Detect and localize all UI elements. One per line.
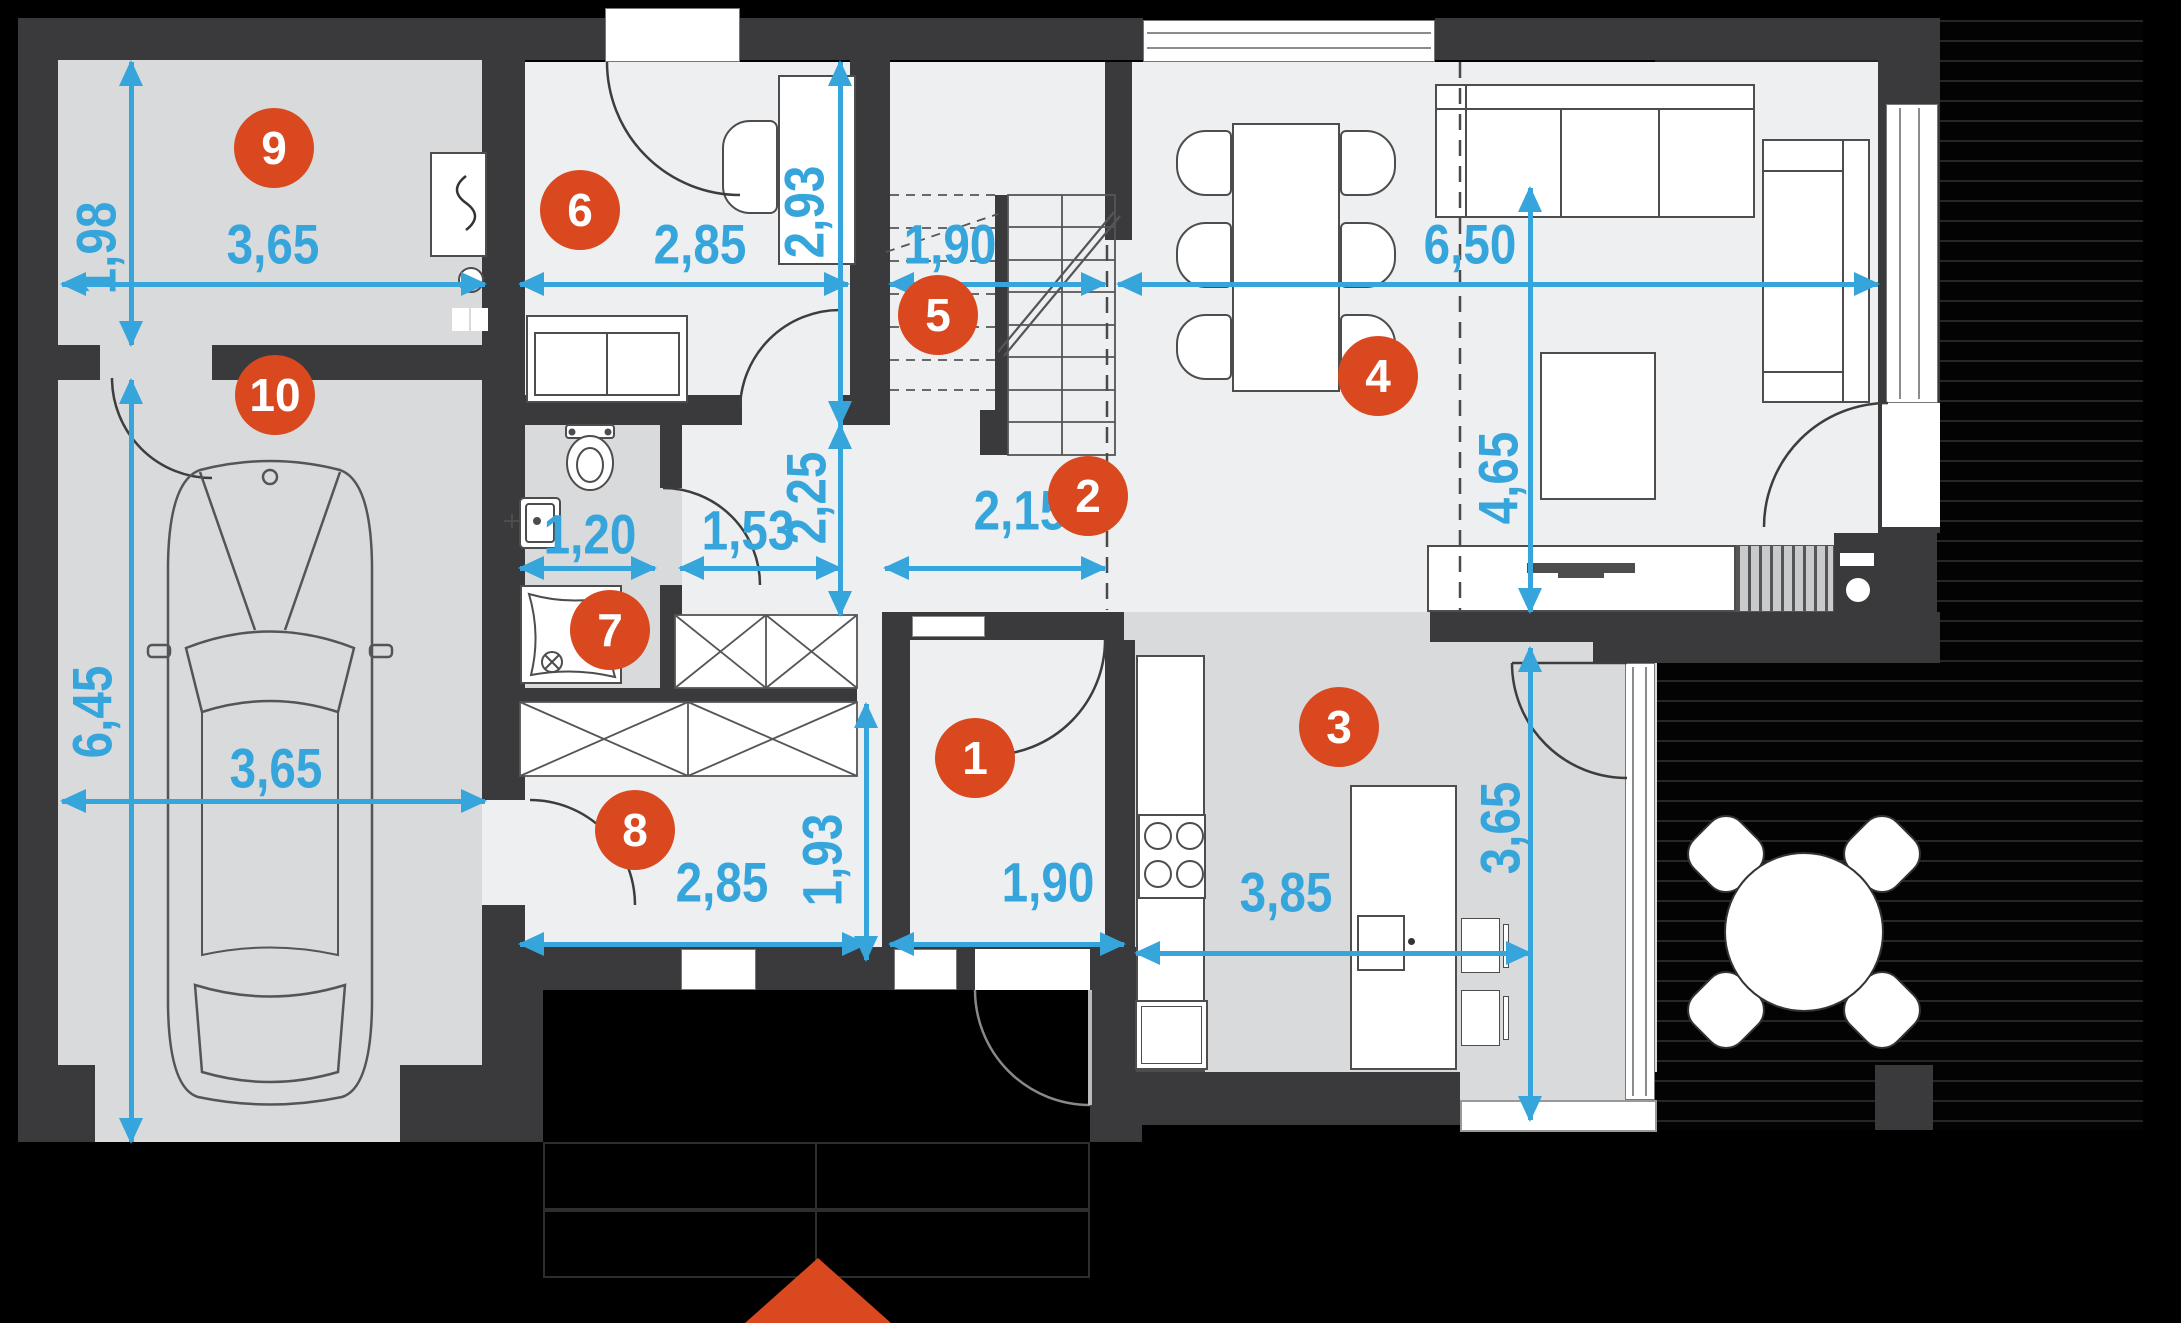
dim-arrowhead (119, 321, 143, 347)
dim-line-kitchen-height (1528, 648, 1533, 1120)
dim-line-room1-width (890, 942, 1124, 947)
heater-coil-icon (457, 176, 475, 230)
floor-plan: 3,65 2,85 1,90 6,50 1,98 6,45 3,65 2,93 … (0, 0, 2181, 1323)
dim-line-hall-width (680, 566, 840, 571)
dim-arrowhead (828, 60, 852, 86)
dim-line-living-height (1528, 188, 1533, 612)
dim-arrowhead (1100, 932, 1126, 956)
dim-label-living-width: 6,50 (1424, 212, 1517, 277)
dim-line-hall-height (838, 425, 843, 615)
room-badge-7: 7 (570, 590, 650, 670)
room-badge-3: 3 (1299, 687, 1379, 767)
entrance-door (975, 990, 1090, 1105)
dim-arrowhead (888, 932, 914, 956)
dim-arrowhead (1518, 646, 1542, 672)
dim-label-room6-width: 2,85 (654, 212, 747, 277)
dim-label-kitchen-width: 3,85 (1240, 860, 1333, 925)
room-badge-10: 10 (235, 355, 315, 435)
dim-arrowhead (1518, 1096, 1542, 1122)
dim-arrowhead (119, 378, 143, 404)
dim-arrowhead (883, 556, 909, 580)
dim-arrowhead (60, 789, 86, 813)
dim-arrowhead (828, 423, 852, 449)
dim-line-room8-width (520, 942, 866, 947)
dim-arrowhead (518, 932, 544, 956)
dim-arrowhead (1854, 272, 1880, 296)
room-badge-8: 8 (595, 790, 675, 870)
dim-label-garage-width: 3,65 (230, 736, 323, 801)
dim-arrowhead (518, 556, 544, 580)
dim-arrowhead (1134, 941, 1160, 965)
dim-arrowhead (678, 556, 704, 580)
dim-line-room8-height (864, 704, 869, 960)
dim-label-stairs-width: 1,90 (904, 212, 997, 277)
dim-arrowhead (854, 936, 878, 962)
dim-label-room8-width: 2,85 (676, 850, 769, 915)
dim-arrowhead (828, 591, 852, 617)
room-badge-9: 9 (234, 108, 314, 188)
dim-label-living-height: 4,65 (1466, 432, 1531, 525)
plan-linework (0, 0, 2181, 1323)
dim-arrowhead (518, 272, 544, 296)
room-badge-2: 2 (1048, 456, 1128, 536)
dim-label-garage-height: 6,45 (60, 666, 125, 759)
dim-arrowhead (119, 60, 143, 86)
dim-label-room9-width: 3,65 (227, 212, 320, 277)
dim-arrowhead (1116, 272, 1142, 296)
dim-label-room1-width: 1,90 (1002, 850, 1095, 915)
dim-arrowhead (1081, 556, 1107, 580)
dim-arrowhead (824, 272, 850, 296)
room-badge-6: 6 (540, 170, 620, 250)
dim-label-room9-height: 1,98 (64, 202, 129, 295)
room-badge-4: 4 (1338, 336, 1418, 416)
dim-label-wc-width: 1,20 (544, 502, 637, 567)
dim-arrowhead (854, 702, 878, 728)
dim-line-garage-height (129, 380, 134, 1142)
dim-arrowhead (1081, 272, 1107, 296)
room-badge-5: 5 (898, 275, 978, 355)
dim-line-room6-height (838, 62, 843, 425)
dim-line-living-width (1118, 282, 1878, 287)
dim-label-room8-height: 1,93 (790, 814, 855, 907)
dim-label-kitchen-height: 3,65 (1468, 782, 1533, 875)
room-badge-1: 1 (935, 718, 1015, 798)
dim-line-kitchen-width (1136, 951, 1530, 956)
dim-line-wc-width (520, 566, 655, 571)
dim-arrowhead (1518, 186, 1542, 212)
dim-line-hall2-width (885, 566, 1105, 571)
dim-arrowhead (461, 789, 487, 813)
dim-label-room6-height: 2,93 (772, 166, 837, 259)
dim-line-room6-width (520, 282, 848, 287)
dim-arrowhead (1518, 588, 1542, 614)
dim-arrowhead (119, 1118, 143, 1144)
void-dashed-lines (1107, 62, 1460, 610)
dim-line-room9-height (129, 62, 134, 345)
dim-label-hall-width: 1,53 (702, 498, 795, 563)
dim-arrowhead (461, 272, 487, 296)
